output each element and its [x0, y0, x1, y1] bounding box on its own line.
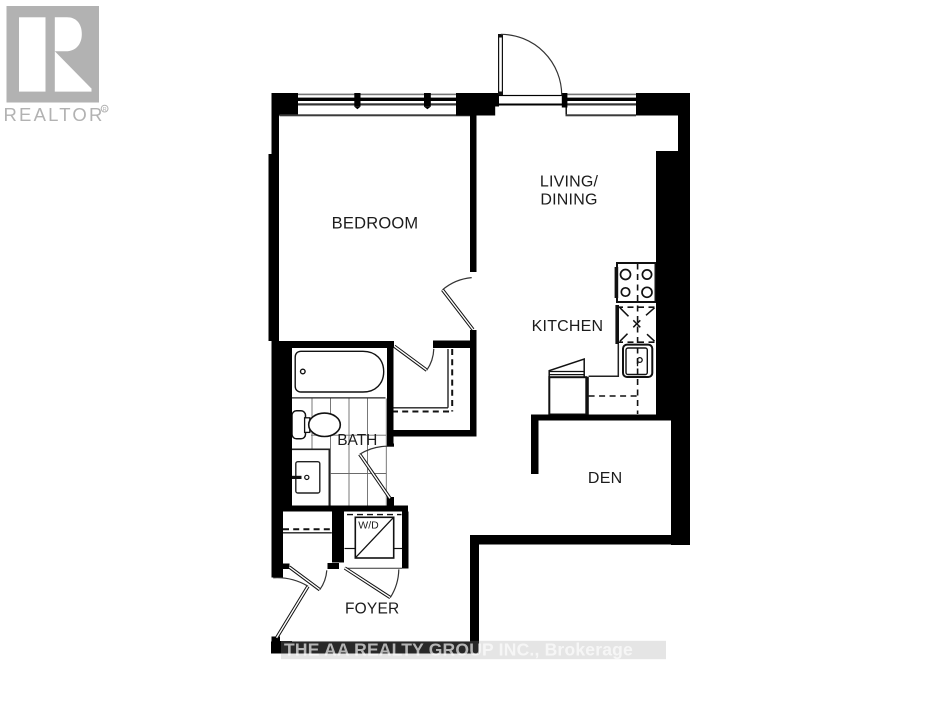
svg-text:BEDROOM: BEDROOM	[332, 214, 419, 232]
svg-text:REALTOR: REALTOR	[4, 104, 105, 125]
svg-text:THE AA REALTY GROUP INC., Brok: THE AA REALTY GROUP INC., Brokerage	[284, 640, 633, 660]
svg-text:DEN: DEN	[588, 470, 623, 487]
svg-text:W/D: W/D	[358, 519, 379, 531]
svg-text:R: R	[103, 107, 107, 113]
svg-text:BATH: BATH	[337, 432, 377, 449]
svg-text:FOYER: FOYER	[345, 600, 399, 617]
svg-text:LIVING/: LIVING/	[540, 174, 599, 191]
svg-text:DINING: DINING	[540, 192, 597, 209]
svg-text:KITCHEN: KITCHEN	[532, 318, 604, 335]
